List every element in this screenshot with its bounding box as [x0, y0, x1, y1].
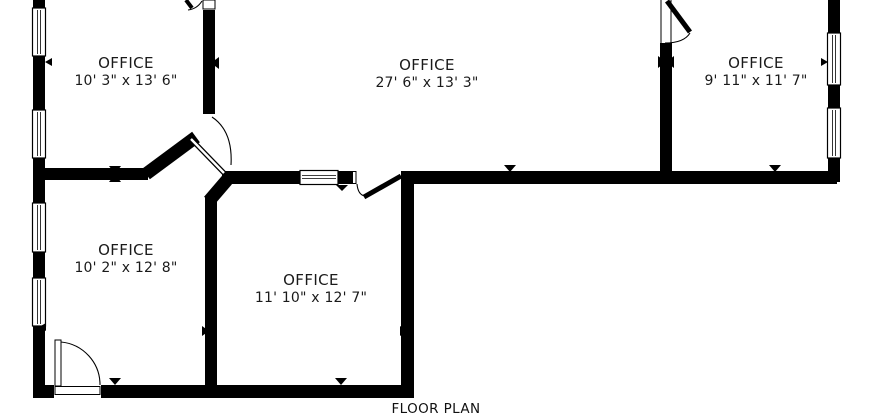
door-diagonal-center [191, 117, 231, 173]
door-topright-office [660, 0, 690, 43]
window-left-4 [33, 278, 46, 326]
door-topleft-office [186, 0, 215, 10]
room-label-office-middle: OFFICE 27' 6" x 13' 3" [375, 56, 478, 92]
wall-chamfer-topleft-office [146, 137, 196, 174]
triangle-marker [504, 165, 516, 172]
room-label-office-top-right: OFFICE 9' 11" x 11' 7" [704, 54, 807, 90]
wall-left-exterior [33, 0, 45, 398]
triangle-marker [336, 185, 348, 191]
room-name: OFFICE [704, 54, 807, 73]
window-left-2 [33, 110, 46, 158]
triangle-marker [335, 378, 347, 385]
floor-plan: OFFICE 10' 3" x 13' 6" OFFICE 27' 6" x 1… [0, 0, 870, 420]
window-left-3 [33, 203, 46, 252]
room-label-office-bottom-left: OFFICE 10' 2" x 12' 8" [74, 241, 177, 277]
room-name: OFFICE [74, 54, 177, 73]
wall-divider-topleft-bottomleft [33, 168, 148, 180]
room-dimensions: 27' 6" x 13' 3" [375, 75, 478, 93]
plan-title: FLOOR PLAN [391, 401, 480, 417]
triangle-marker [769, 165, 781, 172]
door-bottommiddle-office [352, 170, 401, 197]
wall-bottommiddle-office-right [401, 171, 414, 398]
room-dimensions: 11' 10" x 12' 7" [255, 290, 367, 308]
room-dimensions: 10' 3" x 13' 6" [74, 73, 177, 91]
room-name: OFFICE [375, 56, 478, 75]
triangle-marker [109, 378, 121, 385]
window-corridor-interior [300, 171, 338, 185]
room-label-office-top-left: OFFICE 10' 3" x 13' 6" [74, 54, 177, 90]
room-dimensions: 10' 2" x 12' 8" [74, 260, 177, 278]
window-right-1 [828, 33, 841, 85]
window-right-2 [828, 108, 841, 158]
room-dimensions: 9' 11" x 11' 7" [704, 73, 807, 91]
room-name: OFFICE [74, 241, 177, 260]
wall-chamfer-bottommiddle-office [209, 180, 227, 201]
door-exterior-bottomleft [54, 340, 101, 399]
wall-markers [39, 56, 828, 385]
wall-divider-bottomleft-bottommiddle [205, 197, 217, 398]
room-name: OFFICE [255, 271, 367, 290]
arrow-marker [45, 58, 52, 66]
room-label-office-bottom-middle: OFFICE 11' 10" x 12' 7" [255, 271, 367, 307]
window-left-1 [33, 8, 46, 56]
